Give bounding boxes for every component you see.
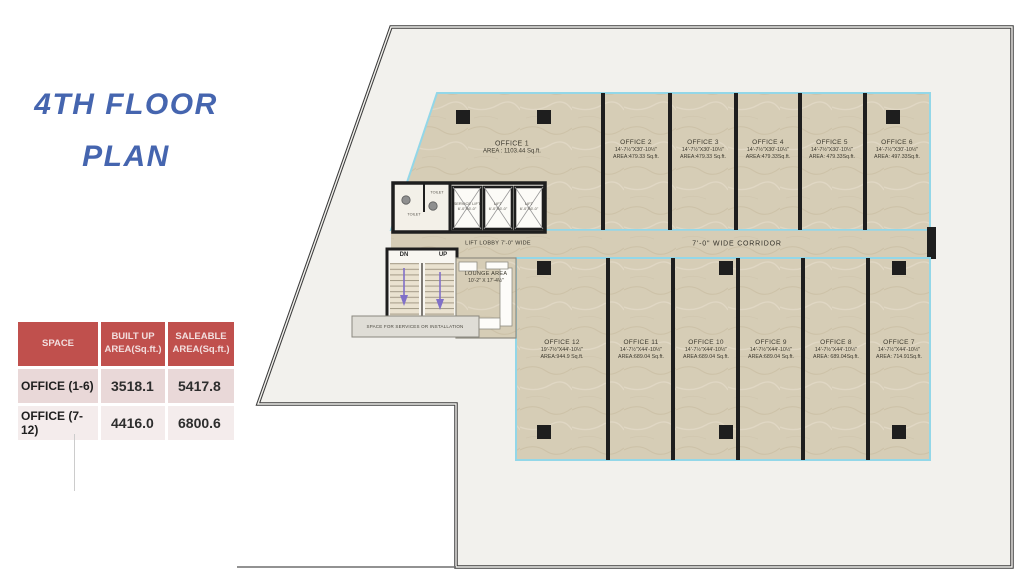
lift-lobby-label: LIFT LOBBY 7'-0" WIDE xyxy=(465,240,531,247)
lounge-label: LOUNGE AREA 10'-2" X 17'-4½" xyxy=(465,271,508,285)
office-12-label: OFFICE 12 19'-7½"X44'-10½" AREA:944.9 Sq… xyxy=(541,339,584,361)
toilet-label: TOILET xyxy=(407,213,420,218)
page-title: 4TH FLOOR PLAN xyxy=(0,90,252,172)
col-header-saleable: SALEABLE AREA(Sq.ft.) xyxy=(168,322,234,366)
wc-fixture xyxy=(429,202,437,210)
lift-label: LIFT 6'-0"X6'-0" xyxy=(520,202,539,212)
page-title-line2: PLAN xyxy=(0,142,252,172)
stair-up-label: UP xyxy=(439,252,447,260)
table-row-builtup: 4416.0 xyxy=(101,406,165,440)
table-tail-line xyxy=(74,434,75,491)
table-row-saleable: 5417.8 xyxy=(168,369,234,403)
lift-label: LIFT 6'-0"X6'-0" xyxy=(489,202,508,212)
office-8-label: OFFICE 8 14'-7½"X44'-10½" AREA: 689.04Sq… xyxy=(813,339,859,361)
table-row-space: OFFICE (1-6) xyxy=(18,369,98,403)
office-10-label: OFFICE 10 14'-7½"X44'-10½" AREA:689.04 S… xyxy=(683,339,729,361)
col-header-space: SPACE xyxy=(18,322,98,366)
office-2-label: OFFICE 2 14'-7½"X30'-10½" AREA:479.33 Sq… xyxy=(613,139,659,161)
wc-fixture xyxy=(402,196,410,204)
table-row-saleable: 6800.6 xyxy=(168,406,234,440)
services-label: SPACE FOR SERVICES OR INSTALLATION xyxy=(367,324,464,330)
col-header-builtup: BUILT UP AREA(Sq.ft.) xyxy=(101,322,165,366)
office-3-label: OFFICE 3 14'-7½"X30'-10½" AREA:479.33 Sq… xyxy=(680,139,726,161)
office-6-label: OFFICE 6 14'-7½"X30'-10½" AREA: 497.33Sq… xyxy=(874,139,920,161)
office-5-label: OFFICE 5 14'-7½"X30'-10½" AREA: 479.33Sq… xyxy=(809,139,855,161)
table-row-space: OFFICE (7-12) xyxy=(18,406,98,440)
office-7-label: OFFICE 7 14'-7½"X44'-10½" AREA: 714.91Sq… xyxy=(876,339,922,361)
floor-plan-slide: 4TH FLOOR PLAN SPACE BUILT UP AREA(Sq.ft… xyxy=(0,0,1024,577)
office-1-label: OFFICE 1 AREA : 1103.44 Sq.ft. xyxy=(483,140,541,157)
toilet-label: TOILET xyxy=(430,191,443,196)
stair-dn-label: DN xyxy=(400,252,409,260)
office-9-label: OFFICE 9 14'-7½"X44'-10½" AREA:689.04 Sq… xyxy=(748,339,794,361)
page-title-line1: 4TH FLOOR xyxy=(0,90,252,120)
office-4-label: OFFICE 4 14'-7½"X30'-10½" AREA:479.33Sq.… xyxy=(746,139,790,161)
corridor-label: 7'-0" WIDE CORRIDOR xyxy=(692,239,781,248)
area-summary-table: SPACE BUILT UP AREA(Sq.ft.) SALEABLE ARE… xyxy=(18,322,228,440)
office-11-label: OFFICE 11 14'-7½"X44'-10½" AREA:689.04 S… xyxy=(618,339,664,361)
service-lift-label: SERVICE LIFT 6'-0"X6'-0" xyxy=(454,202,481,212)
floor-plan-drawing xyxy=(0,0,1024,577)
table-row-builtup: 3518.1 xyxy=(101,369,165,403)
